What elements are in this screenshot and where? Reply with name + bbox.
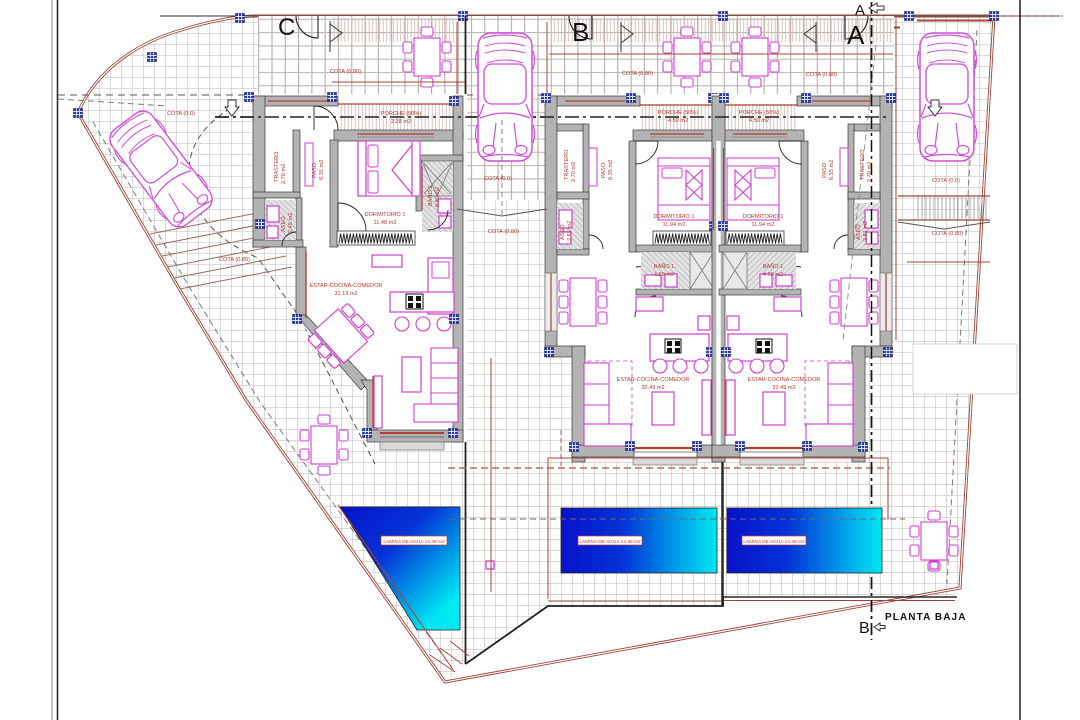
svg-text:PASO: PASO [822, 162, 828, 178]
svg-text:COTA (0.80): COTA (0.80) [622, 71, 653, 77]
svg-text:2.70 m2: 2.70 m2 [571, 162, 577, 182]
svg-text:32.49 m2: 32.49 m2 [772, 385, 795, 391]
svg-text:PORCHE (50%): PORCHE (50%) [658, 110, 699, 116]
svg-text:ESTAR-COCINA-COMEDOR: ESTAR-COCINA-COMEDOR [310, 283, 383, 289]
svg-text:31.13 m2: 31.13 m2 [334, 291, 357, 297]
svg-text:2.28 m2: 2.28 m2 [391, 119, 411, 125]
svg-text:11.94 m2: 11.94 m2 [663, 222, 686, 228]
svg-text:32.49 m2: 32.49 m2 [641, 385, 664, 391]
svg-text:B: B [859, 620, 870, 637]
svg-text:ASEO: ASEO [281, 216, 287, 232]
svg-text:LAMINA DE AGUA 14.49 m2: LAMINA DE AGUA 14.49 m2 [383, 539, 445, 545]
svg-text:COTA (0.80): COTA (0.80) [488, 229, 519, 235]
svg-text:COTA (0.0): COTA (0.0) [167, 111, 195, 117]
svg-text:TRASTERO: TRASTERO [274, 151, 280, 182]
svg-text:LAMINA DE AGUA 14.38 m2: LAMINA DE AGUA 14.38 m2 [579, 539, 641, 545]
svg-text:6.35 m2: 6.35 m2 [608, 160, 614, 180]
svg-text:2.61 m2: 2.61 m2 [863, 221, 869, 241]
svg-text:COTA (0.0): COTA (0.0) [484, 176, 512, 182]
svg-text:2.70 m2: 2.70 m2 [867, 162, 873, 182]
svg-text:B: B [572, 17, 589, 47]
svg-text:COTA (0.80): COTA (0.80) [932, 231, 963, 237]
svg-text:2.70 m2: 2.70 m2 [281, 164, 287, 184]
svg-text:COTA (0.80): COTA (0.80) [219, 257, 250, 263]
svg-text:4.50 m2: 4.50 m2 [763, 272, 783, 278]
svg-text:2.45 m2: 2.45 m2 [288, 213, 294, 233]
svg-text:4.50 m2: 4.50 m2 [749, 118, 769, 124]
svg-text:11.48 m2: 11.48 m2 [374, 220, 397, 226]
svg-text:ESTAR-COCINA-COMEDOR: ESTAR-COCINA-COMEDOR [617, 377, 690, 383]
svg-text:BAÑO 1: BAÑO 1 [427, 185, 434, 206]
svg-text:BAÑO 1: BAÑO 1 [763, 263, 784, 270]
svg-text:LAMINA DE AGUA 14.38 m2: LAMINA DE AGUA 14.38 m2 [743, 539, 805, 545]
svg-text:C: C [278, 14, 295, 41]
svg-text:TRASTERO: TRASTERO [564, 149, 570, 180]
svg-text:4.50 m2: 4.50 m2 [654, 272, 674, 278]
svg-text:COTA (0.80): COTA (0.80) [806, 72, 837, 78]
svg-text:11.94 m2: 11.94 m2 [752, 222, 775, 228]
svg-text:PASO: PASO [312, 162, 318, 178]
svg-text:4.50 m2: 4.50 m2 [668, 118, 688, 124]
svg-text:5.60 m2: 5.60 m2 [435, 187, 441, 207]
svg-text:ASEO: ASEO [560, 224, 566, 240]
svg-text:ESTAR-COCINA-COMEDOR: ESTAR-COCINA-COMEDOR [748, 377, 821, 383]
svg-text:PORCHE (50%): PORCHE (50%) [739, 110, 780, 116]
svg-text:BAÑO 1: BAÑO 1 [654, 263, 675, 270]
svg-text:DORMITORIO 1: DORMITORIO 1 [743, 214, 784, 220]
svg-text:2.61 m2: 2.61 m2 [567, 221, 573, 241]
svg-text:ASEO: ASEO [856, 224, 862, 240]
svg-text:6.35 m2: 6.35 m2 [319, 160, 325, 180]
svg-text:PASO: PASO [601, 162, 607, 178]
svg-text:DORMITORIO 1: DORMITORIO 1 [654, 214, 695, 220]
svg-text:PORCHE (50%): PORCHE (50%) [381, 111, 422, 117]
svg-text:A: A [847, 20, 865, 50]
svg-text:COTA (0.80): COTA (0.80) [330, 69, 361, 75]
svg-text:DORMITORIO 1: DORMITORIO 1 [365, 212, 406, 218]
svg-text:PLANTA BAJA: PLANTA BAJA [885, 612, 967, 623]
svg-text:COTA (0.0): COTA (0.0) [932, 178, 960, 184]
svg-text:A: A [855, 2, 865, 19]
svg-text:6.35 m2: 6.35 m2 [829, 160, 835, 180]
